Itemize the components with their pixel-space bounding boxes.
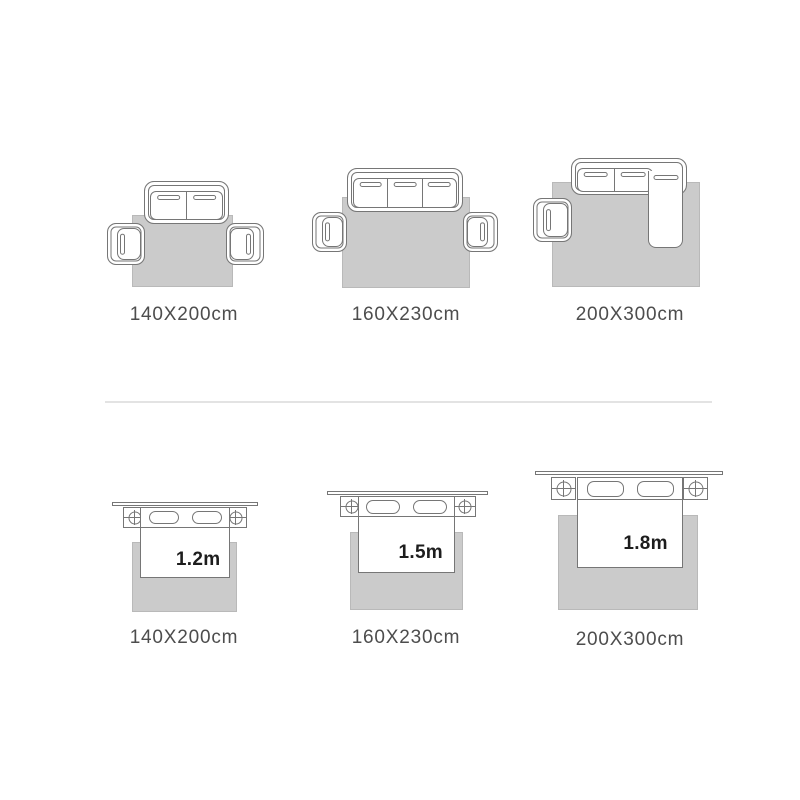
armchair-icon	[533, 198, 572, 242]
cushion-seam-icon	[428, 182, 451, 187]
armchair-icon	[107, 223, 145, 265]
lamp-circle-icon	[229, 511, 242, 524]
headboard-shelf	[112, 502, 258, 506]
rug-size-label: 200X300cm	[540, 304, 720, 326]
sofa-cushion	[151, 192, 186, 219]
bed-width-label: 1.2m	[176, 549, 221, 571]
bed-icon: 1.2m	[140, 527, 230, 578]
cushion-seam-icon	[653, 175, 678, 180]
three-seat-sofa-icon	[347, 168, 463, 212]
cushion-seam-icon	[480, 222, 485, 241]
sofa-cushion	[354, 179, 387, 207]
cushion-seam-icon	[157, 195, 181, 200]
section-divider	[105, 401, 712, 403]
cushion-seam-icon	[546, 209, 551, 231]
lamp-circle-icon	[345, 500, 358, 513]
cushion-seam-icon	[246, 234, 251, 255]
sofa-cushion	[387, 179, 421, 207]
sofa-seat	[577, 168, 653, 192]
rug-size-label: 140X200cm	[94, 304, 274, 326]
pillow-icon	[149, 511, 179, 524]
pillow-icon	[366, 500, 400, 514]
cushion-seam-icon	[583, 172, 608, 177]
armchair-cushion	[322, 217, 343, 247]
chaise-lounge-icon	[648, 171, 683, 248]
sofa-cushion	[578, 169, 615, 191]
bed-headboard	[140, 507, 230, 528]
cushion-seam-icon	[394, 182, 417, 187]
bed-headboard	[358, 496, 455, 517]
bed-headboard	[577, 477, 683, 500]
rug-size-label: 160X230cm	[316, 627, 496, 649]
cushion-seam-icon	[120, 234, 125, 255]
armchair-cushion	[543, 203, 568, 237]
sofa-seat	[150, 191, 223, 220]
cushion-seam-icon	[621, 172, 646, 177]
lamp-circle-icon	[458, 500, 471, 513]
sofa-cushion	[614, 169, 652, 191]
rug-swatch	[132, 215, 233, 287]
armchair-cushion	[467, 217, 488, 247]
pillow-icon	[192, 511, 222, 524]
sofa-cushion	[186, 192, 222, 219]
bed-icon: 1.8m	[577, 499, 683, 568]
armchair-icon	[226, 223, 264, 265]
pillow-icon	[413, 500, 447, 514]
cushion-seam-icon	[359, 182, 382, 187]
armchair-icon	[312, 212, 347, 252]
rug-size-label: 160X230cm	[316, 304, 496, 326]
nightstand-icon	[683, 477, 708, 500]
rug-size-guide: 140X200cm 160X230cm	[0, 0, 800, 800]
sofa-cushion	[422, 179, 456, 207]
sofa-seat	[353, 178, 457, 208]
lamp-circle-icon	[556, 481, 571, 496]
cushion-seam-icon	[325, 222, 330, 241]
pillow-icon	[587, 481, 624, 497]
cushion-seam-icon	[193, 195, 217, 200]
bed-width-label: 1.5m	[398, 542, 443, 564]
armchair-icon	[463, 212, 498, 252]
lamp-circle-icon	[688, 481, 703, 496]
rug-size-label: 200X300cm	[540, 629, 720, 651]
armchair-cushion	[117, 228, 141, 260]
headboard-shelf	[535, 471, 723, 475]
nightstand-icon	[453, 496, 476, 517]
bed-icon: 1.5m	[358, 516, 455, 573]
armchair-cushion	[230, 228, 254, 260]
bed-width-label: 1.8m	[623, 533, 668, 555]
nightstand-icon	[551, 477, 576, 500]
pillow-icon	[637, 481, 674, 497]
two-seat-sofa-icon	[144, 181, 229, 224]
rug-size-label: 140X200cm	[94, 627, 274, 649]
headboard-shelf	[327, 491, 488, 495]
